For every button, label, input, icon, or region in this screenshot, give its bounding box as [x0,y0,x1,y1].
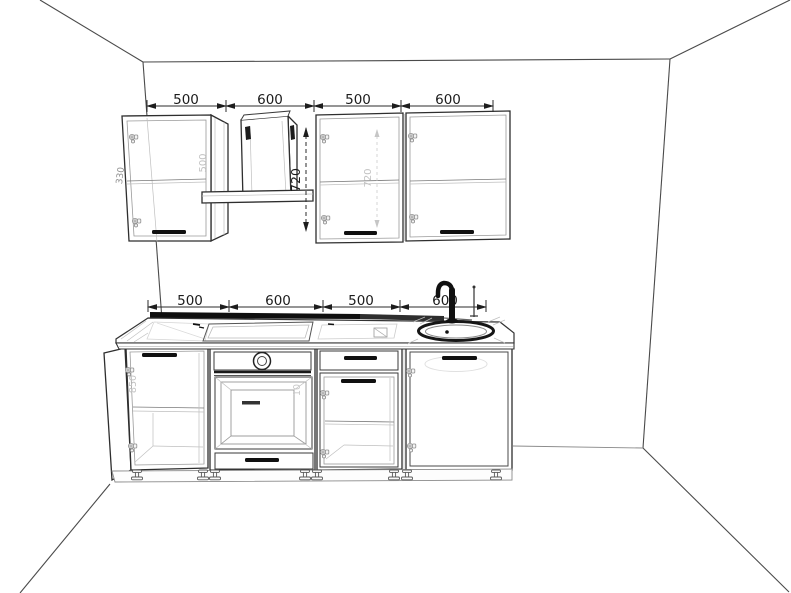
backsplash-mid [360,314,444,321]
ceiling-edge-right [670,0,790,59]
wall-cabinet-4 [406,111,510,241]
dim-label-base-3: 500 [348,293,374,309]
sink-drain [445,330,449,334]
wall-cabinet-1-handle [152,230,186,234]
dim-label-base-1: 500 [177,293,203,309]
wall-cabinet-4-front [406,111,510,241]
dim-label-720: 720 [288,168,303,192]
dim-label-base-2: 600 [265,293,291,309]
wall-cabinet-1-side-panel [211,115,228,241]
sink-cabinet-handle [442,356,477,360]
counter-detail-mark [193,324,200,325]
ceiling-back-edge [143,59,670,62]
dim-chain-wall-units: 500 600 500 600 [147,92,493,112]
kitchen-drawing-canvas: 500 330 720 720 [0,0,791,593]
plinth-and-feet [112,469,512,482]
dim-label-wall-3: 500 [345,92,371,108]
oven-rack-bar [242,401,260,405]
wall-corner-right [643,59,670,448]
hood-vent-slot [245,126,251,140]
floor-edge-left [20,484,110,593]
base-cabinet-1: 850 [104,347,208,480]
oven-control-panel [214,352,311,370]
faint-niche-label: 10 [292,384,303,396]
room-outline [20,0,790,593]
base-cabinet-3-drawer-handle [344,356,377,360]
countertop-front-edge [116,343,514,349]
base-cabinet-1-front [126,347,208,470]
dim-label-wall-4: 600 [435,92,461,108]
wall-cabinet-1: 500 330 [115,115,228,242]
faint-width-label: 500 [198,153,209,172]
base-cabinet-sink [406,347,512,470]
dim-label-wall-2: 600 [257,92,283,108]
base-cabinet-1-handle [142,353,177,357]
floor-edge-right [643,448,789,592]
wall-cabinet-3-handle [344,231,377,235]
oven-drawer-handle [245,458,279,462]
wall-cabinet-4-handle [440,230,474,234]
faint-side-label: 330 [115,166,127,185]
dim-chain-base-units: 500 600 500 600 [148,293,486,312]
faucet-base [446,319,458,324]
ceiling-edge-left [40,0,143,62]
kitchen-drawing: 500 330 720 720 [0,0,791,593]
dim-label-wall-1: 500 [173,92,199,108]
base-cabinet-oven: 10 [210,347,315,470]
wall-cabinet-3-front [316,113,403,243]
faint-height-label: 720 [363,168,374,187]
faint-height-label: 850 [128,375,139,393]
base-cabinet-3 [317,347,402,470]
base-cabinet-3-door-handle [341,379,376,383]
base-cabinet-3-door [320,373,398,467]
base-cabinet-3-drawer [320,351,398,370]
floor-back-edge [513,446,643,448]
wall-cabinet-3: 720 [316,113,403,243]
sink-and-faucet [419,283,494,341]
sink-cabinet-front [406,347,512,470]
